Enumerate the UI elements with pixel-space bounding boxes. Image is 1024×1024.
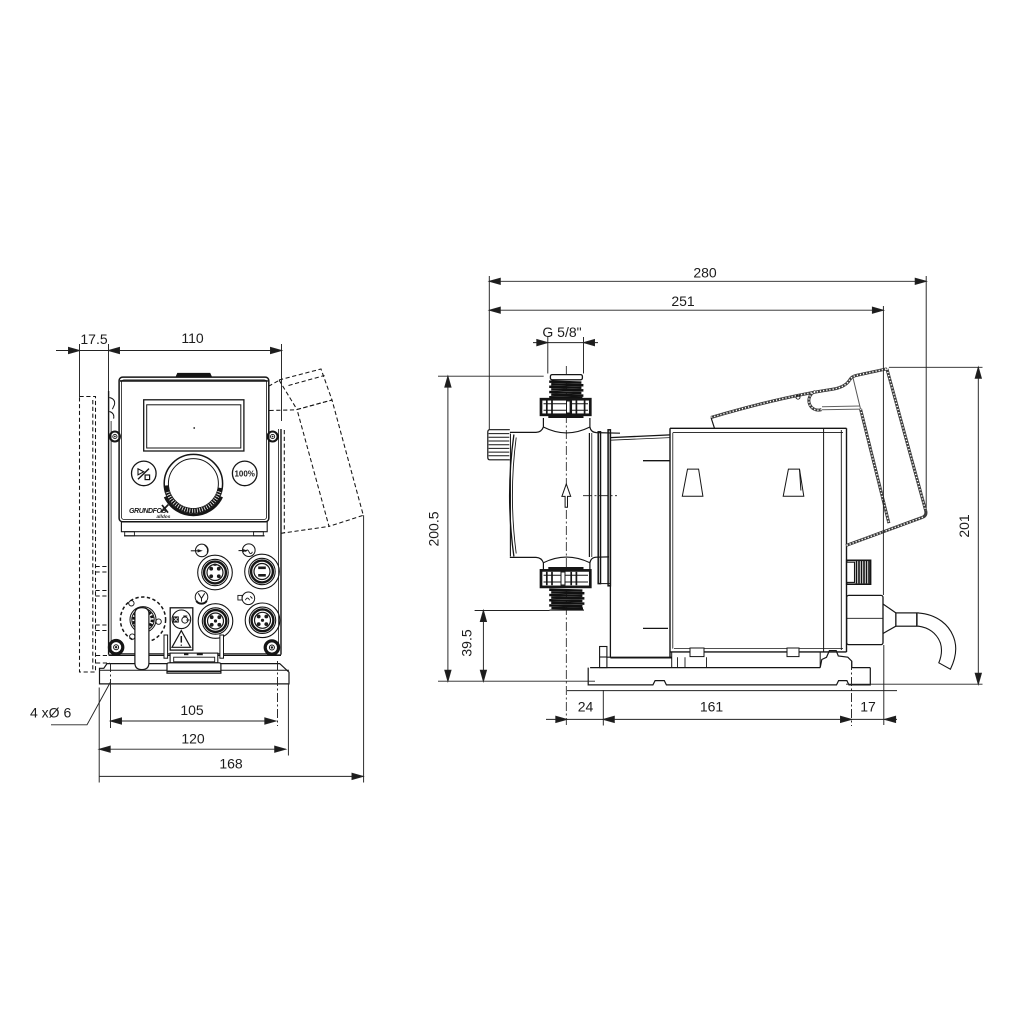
svg-text:200.5: 200.5 — [426, 511, 442, 546]
svg-text:alldos: alldos — [157, 514, 171, 520]
svg-text:G 5/8": G 5/8" — [542, 324, 581, 340]
svg-text:110: 110 — [181, 330, 204, 346]
svg-text:120: 120 — [181, 731, 205, 747]
svg-text:161: 161 — [700, 699, 724, 715]
svg-text:100%: 100% — [234, 469, 254, 478]
svg-text:280: 280 — [693, 265, 717, 281]
svg-text:17.5: 17.5 — [80, 331, 107, 347]
svg-text:17: 17 — [860, 699, 876, 715]
svg-text:39.5: 39.5 — [459, 629, 475, 656]
svg-text:251: 251 — [671, 293, 695, 309]
svg-text:201: 201 — [956, 514, 972, 538]
svg-text:24: 24 — [578, 699, 594, 715]
svg-text:168: 168 — [219, 756, 243, 772]
svg-text:4 xØ 6: 4 xØ 6 — [30, 705, 71, 721]
svg-text:105: 105 — [180, 702, 204, 718]
